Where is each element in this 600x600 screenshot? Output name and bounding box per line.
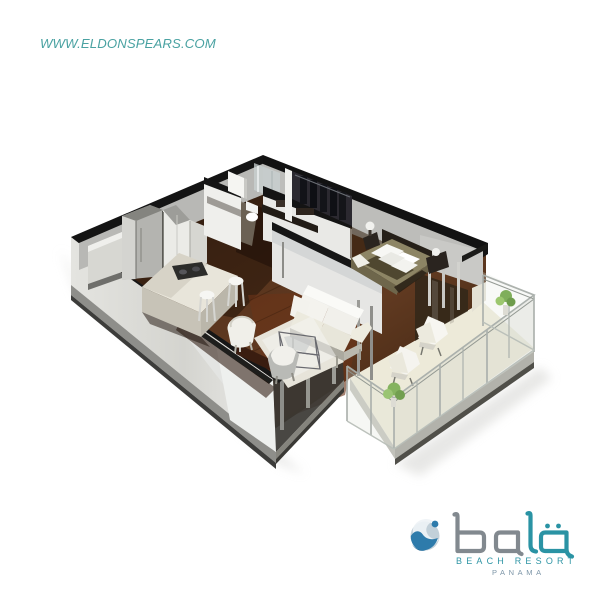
svg-text:BEACH RESORT: BEACH RESORT xyxy=(456,556,577,566)
svg-text:PANAMA: PANAMA xyxy=(492,568,545,577)
